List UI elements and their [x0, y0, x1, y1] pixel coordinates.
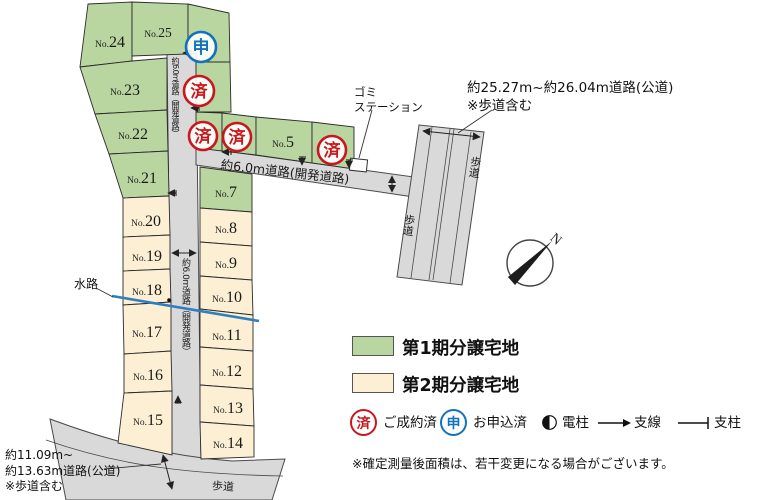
legend-phase1-swatch: [352, 336, 394, 356]
svg-text:済: 済: [324, 140, 342, 161]
legend-applied-label: お申込済: [473, 414, 527, 432]
south-road-note: 約11.09m~ 約13.63m道路(公道) ※歩道含む: [5, 448, 120, 495]
svg-text:済: 済: [229, 127, 247, 148]
waterway-label: 水路: [74, 277, 98, 293]
subdivision-site-plan: No.24 No.25 No.23 No.22 No.21 No.5 No.7 …: [0, 0, 759, 500]
waterway-leader-line: [96, 288, 113, 297]
legend-post-label: 支柱: [714, 414, 741, 432]
dev-road-vertical-label-upper: 約6.0m道路（開発道路）: [170, 57, 181, 157]
compass-n-letter: N: [547, 231, 564, 249]
sidewalk-label-main-left: 歩道: [399, 213, 418, 237]
svg-text:済: 済: [191, 81, 209, 102]
stamp-sold-4: 済: [318, 136, 346, 164]
garbage-station-label: ゴミ ステーション: [354, 85, 423, 115]
compass-north-arrow: N: [507, 231, 564, 286]
stamp-sold-2: 済: [189, 122, 217, 150]
legend-sold-stamp-icon: 済: [350, 409, 377, 436]
legend-sold-label: ご成約済: [383, 414, 437, 432]
sidewalk-label-south: 歩道: [211, 477, 234, 494]
survey-note: ※確定測量後面積は、若干変更になる場合がございます。: [352, 456, 674, 472]
lot-21-shape: [109, 151, 169, 198]
main-road-note-line1: 約25.27m~約26.04m道路(公道): [467, 80, 673, 98]
legend-applied-stamp-icon: 申: [440, 409, 467, 436]
utility-pole-dot: [167, 298, 171, 302]
main-road-note-line2: ※歩道含む: [467, 98, 673, 116]
stamp-sold-1: 済: [184, 76, 214, 106]
main-public-road: [397, 125, 484, 285]
legend-pole-label: 電柱: [562, 414, 589, 432]
legend-wire-label: 支線: [634, 414, 661, 432]
stamp-sold-3: 済: [223, 123, 251, 151]
legend-phase2-label: 第2期分譲宅地: [402, 372, 519, 397]
stamp-applied: 申: [186, 32, 216, 62]
svg-text:済: 済: [195, 126, 213, 147]
garbage-leader-line: [359, 110, 372, 158]
svg-text:申: 申: [193, 37, 210, 58]
legend-phase2-swatch: [352, 373, 394, 393]
sidewalk-label-main-right: 歩道: [465, 155, 484, 179]
main-road-note: 約25.27m~約26.04m道路(公道) ※歩道含む: [467, 80, 673, 115]
dev-road-vertical-label-lower: 約6.0m道路（開発道路）: [179, 258, 192, 368]
legend-phase1-label: 第1期分譲宅地: [402, 335, 519, 360]
